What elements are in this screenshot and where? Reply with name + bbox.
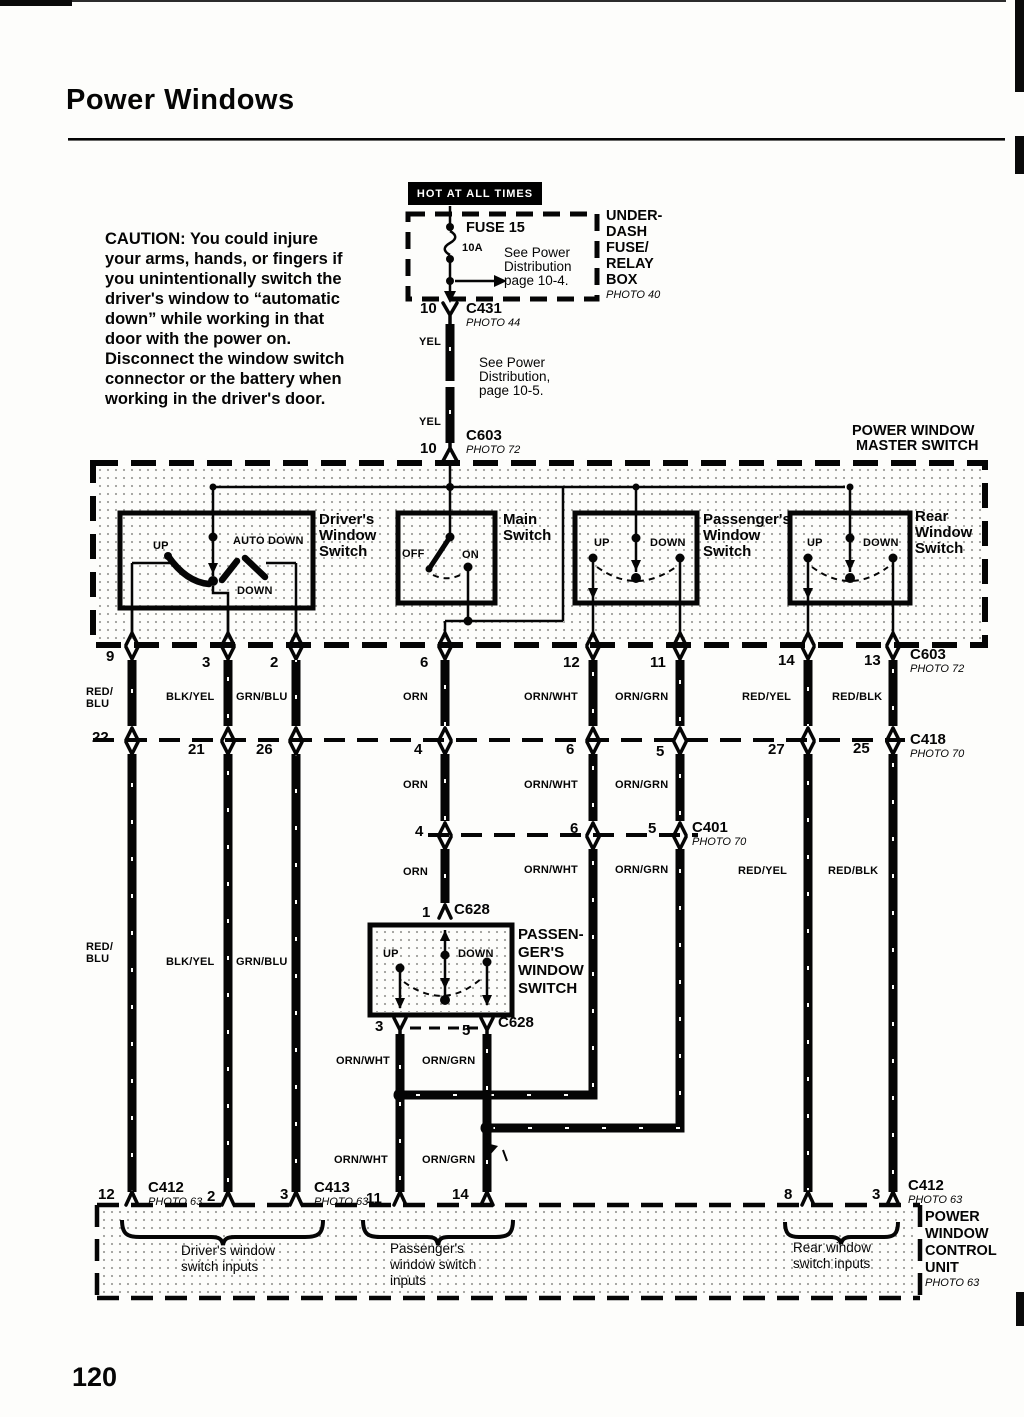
- connector-label: C412: [908, 1177, 944, 1194]
- input-group-label: switch inputs: [181, 1260, 258, 1274]
- wire-color-label: YEL: [419, 416, 441, 428]
- pin-label: 6: [570, 820, 578, 837]
- caution-line: down” while working in that: [105, 309, 324, 329]
- pin-label: 4: [414, 741, 422, 758]
- wire-color-label: ORN/WHT: [524, 779, 578, 791]
- wire-color-label: RED/BLK: [828, 865, 878, 877]
- connector-label: C412: [148, 1179, 184, 1196]
- input-group-label: Driver's window: [181, 1244, 275, 1258]
- pin-label: 12: [98, 1186, 115, 1203]
- pin-label: 3: [375, 1018, 383, 1035]
- pin-label: 27: [768, 741, 785, 758]
- pin-label: 14: [452, 1186, 469, 1203]
- photo-ref: PHOTO 63: [925, 1277, 979, 1289]
- page-title: Power Windows: [66, 84, 295, 117]
- master-switch-title: POWER WINDOW: [852, 423, 974, 439]
- photo-ref: PHOTO 44: [466, 317, 520, 329]
- distribution-note: See Power: [479, 356, 545, 370]
- wire-color-label: ORN/WHT: [336, 1055, 390, 1067]
- pin-label: 22: [92, 729, 109, 746]
- fuse-note: Distribution: [504, 260, 572, 274]
- wire-color-label: RED/YEL: [742, 691, 791, 703]
- title-divider: [68, 138, 1005, 141]
- photo-ref: PHOTO 63: [314, 1196, 368, 1208]
- wire-color-label: RED/ BLU: [86, 941, 113, 965]
- pin-label: 9: [106, 648, 114, 665]
- fusebox-photo-ref: PHOTO 40: [606, 289, 660, 301]
- photo-ref: PHOTO 63: [908, 1194, 962, 1206]
- fuse-note: See Power: [504, 246, 570, 260]
- input-group-label: Rear window: [793, 1241, 871, 1255]
- wire-color-label: RED/ BLU: [86, 686, 113, 710]
- caution-line: door with the power on.: [105, 329, 291, 349]
- passenger-switch-name: Window: [703, 527, 760, 544]
- wire-color-label: ORN: [403, 779, 428, 791]
- input-group-label: window switch: [390, 1258, 476, 1272]
- pin-label: 2: [270, 654, 278, 671]
- rear-switch-name: Rear: [915, 508, 948, 525]
- fuse-note: page 10-4.: [504, 274, 569, 288]
- c628-switch-name: SWITCH: [518, 980, 577, 997]
- wire-color-label: ORN/GRN: [615, 779, 668, 791]
- caution-line: Disconnect the window switch: [105, 349, 344, 369]
- rear-window-switch: [790, 513, 910, 633]
- pin-label: 6: [566, 741, 574, 758]
- connector-label: C603: [466, 427, 502, 444]
- wire-color-label: GRN/BLU: [236, 691, 288, 703]
- switch-position-label: UP: [807, 537, 823, 549]
- fusebox-name: DASH: [606, 224, 647, 240]
- control-unit-name: CONTROL: [925, 1243, 997, 1259]
- drivers-window-switch: [120, 513, 313, 633]
- pin-label: 10: [420, 300, 437, 317]
- wire-color-label: ORN: [403, 691, 428, 703]
- main-switch-name: Switch: [503, 527, 551, 544]
- yel-feed-wire: [443, 324, 457, 461]
- wire-color-label: YEL: [419, 336, 441, 348]
- pin-label: 12: [563, 654, 580, 671]
- pin-label: 2: [207, 1188, 215, 1205]
- connector-label: C628: [454, 901, 490, 918]
- rear-switch-name: Switch: [915, 540, 963, 557]
- c628-switch-name: WINDOW: [518, 962, 584, 979]
- wire-color-label: RED/BLK: [832, 691, 882, 703]
- wire-color-label: ORN/GRN: [615, 691, 668, 703]
- wire-color-label: ORN/GRN: [422, 1154, 475, 1166]
- wire-color-label: RED/YEL: [738, 865, 787, 877]
- pin-label: 3: [872, 1186, 880, 1203]
- wire-color-label: ORN/WHT: [524, 691, 578, 703]
- wire-color-label: BLK/YEL: [166, 691, 214, 703]
- hot-label: HOT AT ALL TIMES: [417, 188, 533, 200]
- fuse-amps: 10A: [462, 242, 483, 254]
- input-group-label: Passenger's: [390, 1242, 464, 1256]
- pin-label: 25: [853, 740, 870, 757]
- connector-label: C401: [692, 819, 728, 836]
- caution-line: working in the driver's door.: [105, 389, 325, 409]
- distribution-note: Distribution,: [479, 370, 550, 384]
- main-switch-name: Main: [503, 511, 537, 528]
- photo-ref: PHOTO 72: [466, 444, 520, 456]
- connector-label: C413: [314, 1179, 350, 1196]
- wire-color-label: ORN/GRN: [422, 1055, 475, 1067]
- passenger-switch-name: Passenger's: [703, 511, 791, 528]
- pin-label: 11: [366, 1190, 382, 1207]
- passengers-window-switch-c628: [370, 905, 512, 1036]
- switch-position-label: AUTO DOWN: [233, 535, 304, 547]
- page-number: 120: [72, 1362, 117, 1393]
- wire-color-label: GRN/BLU: [236, 956, 288, 968]
- connector-label: C418: [910, 731, 946, 748]
- c628-switch-name: GER'S: [518, 944, 564, 961]
- pin-label: 5: [648, 820, 656, 837]
- wire-color-label: ORN/WHT: [334, 1154, 388, 1166]
- pin-label: 4: [415, 823, 423, 840]
- distribution-note: page 10-5.: [479, 384, 544, 398]
- wire-color-label: BLK/YEL: [166, 956, 214, 968]
- switch-position-label: DOWN: [458, 948, 494, 960]
- hot-at-all-times-banner: HOT AT ALL TIMES: [408, 182, 542, 205]
- control-unit-name: POWER: [925, 1209, 980, 1225]
- c628-switch-name: PASSEN-: [518, 926, 584, 943]
- pin-label: 3: [280, 1186, 288, 1203]
- switch-position-label: DOWN: [650, 537, 686, 549]
- switch-position-label: UP: [383, 948, 399, 960]
- switch-position-label: UP: [594, 537, 610, 549]
- drivers-switch-name: Driver's: [319, 511, 374, 528]
- input-group-label: inputs: [390, 1274, 426, 1288]
- switch-position-label: UP: [153, 540, 169, 552]
- switch-position-label: DOWN: [863, 537, 899, 549]
- caution-line: you unintentionally switch the: [105, 269, 342, 289]
- master-switch-title: MASTER SWITCH: [856, 438, 978, 454]
- pin-label: 5: [462, 1022, 470, 1039]
- caution-line: connector or the battery when: [105, 369, 342, 389]
- fusebox-name: UNDER-: [606, 208, 662, 224]
- drivers-switch-name: Switch: [319, 543, 367, 560]
- pin-label: 14: [778, 652, 795, 669]
- pin-label: 5: [656, 743, 664, 760]
- photo-ref: PHOTO 70: [910, 748, 964, 760]
- fuse-label: FUSE 15: [466, 220, 525, 236]
- pin-label: 6: [420, 654, 428, 671]
- switch-position-label: ON: [462, 549, 479, 561]
- pin-label: 8: [784, 1186, 792, 1203]
- caution-line: driver's window to “automatic: [105, 289, 340, 309]
- wire-color-label: ORN/WHT: [524, 864, 578, 876]
- pin-label: 26: [256, 741, 273, 758]
- c401-connector-row: [428, 823, 698, 849]
- fusebox-name: BOX: [606, 272, 637, 288]
- fusebox-name: RELAY: [606, 256, 654, 272]
- pin-label: 13: [864, 652, 881, 669]
- photo-ref: PHOTO 70: [692, 836, 746, 848]
- connector-label: C603: [910, 646, 946, 663]
- rear-switch-name: Window: [915, 524, 972, 541]
- control-unit-name: UNIT: [925, 1260, 959, 1276]
- pin-label: 11: [650, 654, 666, 671]
- photo-ref: PHOTO 63: [148, 1196, 202, 1208]
- input-group-label: switch inputs: [793, 1257, 870, 1271]
- passengers-window-switch-master: [575, 513, 697, 633]
- photo-ref: PHOTO 72: [910, 663, 964, 675]
- pin-label: 10: [420, 440, 437, 457]
- pin-label: 21: [188, 741, 205, 758]
- pin-label: 1: [422, 904, 430, 921]
- connector-label: C628: [498, 1014, 534, 1031]
- caution-line: CAUTION: You could injure: [105, 229, 318, 249]
- caution-line: your arms, hands, or fingers if: [105, 249, 342, 269]
- switch-position-label: OFF: [402, 548, 425, 560]
- passenger-switch-name: Switch: [703, 543, 751, 560]
- wire-color-label: ORN: [403, 866, 428, 878]
- manual-page: Power Windows CAUTION: You could injure …: [0, 0, 1024, 1417]
- pin-label: 3: [202, 654, 210, 671]
- wire-color-label: ORN/GRN: [615, 864, 668, 876]
- fusebox-name: FUSE/: [606, 240, 649, 256]
- connector-label: C431: [466, 300, 502, 317]
- switch-position-label: DOWN: [237, 585, 273, 597]
- control-unit-name: WINDOW: [925, 1226, 989, 1242]
- drivers-switch-name: Window: [319, 527, 376, 544]
